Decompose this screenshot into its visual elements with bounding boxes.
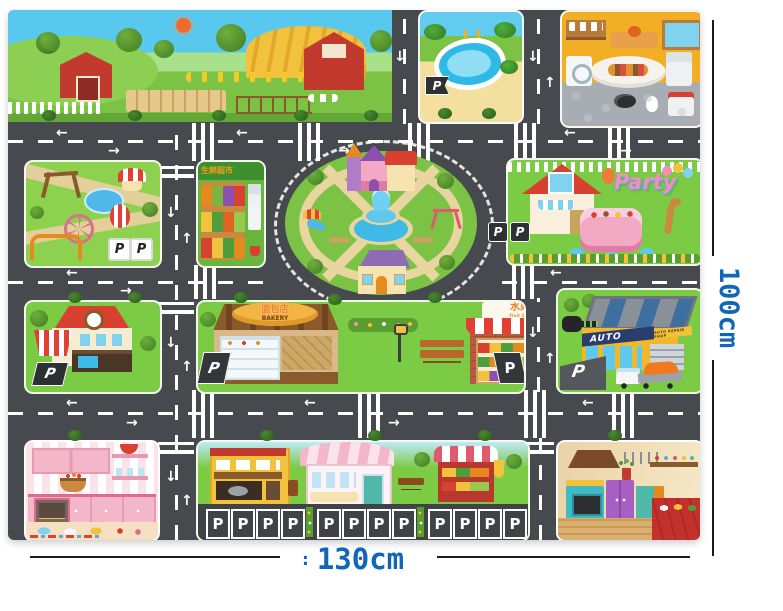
floor-cobbles [562, 84, 700, 126]
road-arrow-icon: ↑ [181, 360, 193, 374]
hot-air-balloon [110, 204, 130, 228]
auto-sign-text: AUTO [590, 331, 622, 344]
tree [506, 454, 522, 469]
play-mat: ← → ← → ← → ← → ← → ← → ← → ← ↓ ↑ ↓ ↑ ↓ … [8, 10, 700, 540]
palm-tree [424, 24, 446, 40]
scene-party: Party [506, 158, 700, 266]
crosswalk [524, 390, 548, 438]
scene-pink-kitchen [24, 440, 160, 540]
car-key-icon [562, 316, 582, 332]
road-arrow-icon: → [620, 144, 632, 158]
island-tree [437, 173, 454, 189]
road-centerline [537, 298, 540, 392]
shelf-cups [116, 468, 144, 476]
road-arrow-icon: ↑ [181, 494, 193, 508]
product-photo: ← → ← → ← → ← → ← → ← → ← → ← ↓ ↑ ↓ ↑ ↓ … [0, 0, 783, 611]
park-tree [30, 206, 44, 219]
crosswalk [512, 265, 534, 299]
apple-tree [216, 24, 246, 52]
tree [30, 310, 48, 327]
apple-tree [36, 32, 60, 54]
picket-fence [8, 102, 104, 114]
castle-keep-roof [360, 145, 388, 161]
produce-sign-cn: 生鲜超市 [201, 167, 233, 175]
roadside-bush [234, 292, 248, 303]
sun-icon [176, 18, 191, 33]
flower-strip [510, 254, 700, 263]
oven-window [572, 494, 602, 516]
wall-shelf [112, 454, 148, 458]
lamp-head [394, 324, 408, 335]
giraffe-head [670, 198, 681, 206]
plant-leaves [616, 458, 636, 470]
boutique-door [362, 474, 384, 508]
parking-sign: P [31, 362, 69, 386]
noodle-shop-door [266, 481, 280, 500]
bakery-sign: 面包店 BAKERY [232, 302, 318, 326]
tree [414, 452, 430, 467]
roadside-bush [368, 430, 382, 441]
car-key-shaft [580, 321, 598, 327]
park-tree [142, 202, 158, 217]
roadside-bush [128, 110, 142, 121]
park-gate [30, 234, 82, 260]
height-dimension-label: 100cm [713, 267, 744, 348]
scene-farm [8, 10, 392, 122]
road-arrow-icon: ↓ [165, 336, 177, 350]
bench [398, 478, 424, 485]
parking-space: P [478, 509, 502, 539]
roadside-bush [68, 292, 82, 303]
cooler [248, 184, 261, 230]
roadside-bush [364, 110, 378, 121]
castle [345, 143, 419, 193]
road-arrow-icon: → [388, 416, 400, 430]
garden-plot [126, 90, 226, 112]
road-arrow-icon: ↓ [527, 326, 539, 340]
boutique-dome [300, 442, 394, 466]
road-arrow-icon: ↓ [527, 50, 539, 64]
bakery-wall-paper [282, 336, 332, 370]
parking-space: P [108, 238, 131, 261]
parking-space: P [281, 509, 305, 539]
cake-topping [588, 210, 634, 220]
shelf-dishes [652, 454, 696, 462]
island-bench [413, 237, 433, 243]
oven [34, 498, 70, 524]
auto-roof [582, 296, 697, 330]
parking-sign: P [488, 222, 508, 242]
roadside-bush [260, 430, 274, 441]
parking-sign-label: P [494, 225, 503, 239]
island-tree [439, 255, 455, 270]
tree [140, 336, 156, 351]
roadside-bush [328, 294, 342, 305]
road-arrow-icon: ← [66, 396, 78, 410]
noodle-shop [210, 448, 290, 506]
restaurant-windows [80, 334, 128, 346]
party-house-window [548, 172, 574, 194]
shelf-jars [569, 22, 603, 31]
apple-tree [370, 30, 392, 52]
parking-space: P [428, 509, 452, 539]
roadside-bush [482, 108, 496, 119]
scene-bakery-supermarket: 面包店 BAKERY 水果超市 Fruit Supermarket [196, 300, 526, 394]
fountain-tier-water [366, 209, 396, 223]
porch-window [78, 356, 98, 368]
road-arrow-icon: ← [564, 126, 576, 140]
boutique-goods [310, 492, 358, 502]
restaurant-awning [34, 330, 72, 356]
parking-sign-label: P [503, 359, 518, 377]
parking-space: P [453, 509, 477, 539]
upper-cabinets [32, 448, 110, 474]
road-arrow-icon: → [108, 144, 120, 158]
parking-space-label: P [349, 515, 360, 533]
chickens [308, 94, 338, 102]
range-hood [568, 450, 620, 468]
roadside-bush [438, 108, 452, 119]
road-arrow-icon: ↑ [544, 76, 556, 90]
island-bench [329, 237, 349, 243]
crosswalk [158, 166, 194, 178]
castle-hall [387, 163, 415, 191]
noodle-shop-roofband [210, 448, 286, 456]
hanging-bananas [494, 460, 504, 478]
tree [564, 298, 579, 312]
roadside-bush [212, 110, 226, 121]
sunflowers [186, 72, 306, 82]
roadside-bush [428, 292, 442, 303]
table-food [608, 64, 648, 76]
table-dishes [656, 502, 700, 514]
roadside-bush [608, 430, 622, 441]
parking-space: P [317, 509, 341, 539]
crosswalk [298, 123, 322, 161]
supermarket-awning [466, 318, 526, 334]
bench [420, 350, 464, 358]
bakery-sign-cn: 面包店 [261, 306, 288, 315]
crosswalk [158, 442, 194, 454]
parking-space: P [503, 509, 527, 539]
castle-door [369, 179, 379, 191]
road-arrow-icon: → [126, 416, 138, 430]
width-dimension-line-left [30, 556, 280, 558]
road-arrow-icon: ↓ [165, 206, 177, 220]
palm-tree [494, 22, 516, 38]
parking-space-label: P [137, 242, 147, 257]
crosswalk [514, 123, 538, 161]
apple-tree [116, 28, 142, 52]
crosswalk [192, 390, 218, 438]
auto-sub-text: AUTO REPAIR SHOP [654, 327, 692, 339]
noodle-shop-signband [214, 472, 282, 479]
pool-ladder [464, 30, 480, 38]
bench [288, 480, 298, 496]
island-tree [307, 259, 323, 274]
road-centerline [537, 10, 540, 124]
parking-space-label: P [485, 515, 496, 533]
parking-sign-label: P [207, 359, 222, 377]
balloon-cluster [660, 162, 694, 182]
cottage-door [376, 276, 387, 294]
boutique-windows [312, 472, 356, 488]
cottage-window [362, 274, 373, 285]
road-arrow-icon: ← [66, 266, 78, 280]
parking-space-label: P [435, 515, 446, 533]
cooking-pot [628, 26, 641, 37]
fountain-jet [372, 191, 390, 211]
scene-dining-kitchen [556, 440, 700, 540]
roadside-bush [478, 430, 492, 441]
produce-sign: 生鲜超市 [198, 162, 264, 180]
parking-space-label: P [399, 515, 410, 533]
scene-shops-row: P P P P P P P P P P P P [196, 440, 530, 540]
road-arrow-icon: ↓ [394, 50, 406, 64]
washer-door [572, 64, 592, 84]
scene-restaurant: P [24, 300, 162, 394]
road-centerline [8, 281, 266, 284]
apple-tree [154, 40, 174, 58]
parking-space-label: P [288, 515, 299, 533]
parking-space: P [342, 509, 366, 539]
wall-shelf [112, 476, 148, 480]
truck-wheels [618, 382, 682, 390]
parking-space: P [392, 509, 416, 539]
parking-space: P [256, 509, 280, 539]
island-cottage [352, 250, 410, 296]
parking-space: P [231, 509, 255, 539]
crosswalk [158, 302, 194, 314]
boutique-body [306, 464, 392, 508]
road-arrow-icon: ↑ [544, 352, 556, 366]
fruit-cart-body [438, 462, 494, 502]
parking-strip: P P P P P P P P P P P P [198, 504, 528, 540]
produce-shelves [201, 182, 245, 260]
scene-dining-room [560, 10, 700, 128]
flower-divider [306, 507, 313, 537]
road-arrow-icon: ← [56, 126, 68, 140]
scene-pool: P [418, 10, 524, 124]
road-arrow-icon: ↓ [165, 470, 177, 484]
roadside-bush [68, 430, 82, 441]
cabinet-purple [606, 480, 634, 520]
flower-divider [417, 507, 424, 537]
parking-space-label: P [115, 242, 125, 257]
bakery-sign-en: BAKERY [262, 315, 289, 322]
parking-space: P [367, 509, 391, 539]
picture-frame [662, 20, 700, 50]
parking-sign-label: P [43, 366, 57, 382]
carousel [118, 168, 146, 182]
width-dimension-line-right [437, 556, 690, 558]
road-arrow-icon: ← [304, 396, 316, 410]
fruit-basket [60, 478, 86, 492]
mini-carousel [303, 209, 321, 219]
bucket [250, 246, 260, 256]
parking-space: P [130, 238, 153, 261]
crosswalk [192, 123, 218, 161]
parking-sign-label: P [433, 79, 442, 93]
parking-space-label: P [460, 515, 471, 533]
tree [200, 312, 216, 327]
parking-space-label: P [263, 515, 274, 533]
roadside-bush [42, 110, 56, 121]
carousel-base [122, 181, 142, 191]
roadside-bush [294, 110, 308, 121]
supermarket-sign-cn: 水果超市 [510, 303, 526, 313]
palm-tree [500, 60, 518, 74]
parking-sign-label: P [516, 225, 525, 239]
road-centerline [403, 10, 406, 124]
roadside-bush [128, 292, 142, 303]
towed-car [644, 361, 679, 375]
road-arrow-icon: ↑ [181, 232, 193, 246]
barn-loft [322, 44, 346, 58]
castle-hall-roof [385, 151, 417, 165]
scene-auto-shop: AUTO AUTO REPAIR SHOP P [556, 288, 700, 394]
noodle-shop-display [216, 481, 262, 500]
parking-sign: P [493, 352, 526, 384]
parking-space-label: P [324, 515, 335, 533]
giraffe-toy [664, 204, 675, 235]
parking-sign: P [425, 76, 449, 95]
parking-space: P [206, 509, 230, 539]
parking-space-label: P [374, 515, 385, 533]
fruit-cart-awning [434, 446, 498, 462]
shelf-bowl [120, 444, 138, 454]
road-arrow-icon: ← [550, 266, 562, 280]
supermarket-sign: 水果超市 Fruit Supermarket [482, 302, 526, 319]
restaurant-round-window [84, 310, 104, 330]
road-arrow-icon: ← [582, 396, 594, 410]
cottage-window [394, 274, 405, 285]
scene-park: P P [24, 160, 162, 268]
castle-tower [347, 155, 361, 191]
width-dimension-label: 130cm [317, 542, 404, 576]
parking-space-label: P [238, 515, 249, 533]
basket-fruit [64, 473, 82, 480]
parking-space-label: P [510, 515, 521, 533]
brand-text-strip [30, 535, 100, 538]
island-tree [307, 169, 324, 185]
refrigerator [666, 52, 692, 86]
road-arrow-icon: ← [236, 126, 248, 140]
wood-floor [558, 518, 658, 540]
bench-back [420, 340, 464, 347]
barn-door [76, 76, 100, 102]
height-dimension-line-bottom [712, 360, 714, 556]
road-centerline [8, 412, 700, 415]
parking-space-label: P [213, 515, 224, 533]
crosswalk [194, 265, 218, 299]
parking-sign: P [510, 222, 530, 242]
dish-shelf [650, 462, 698, 467]
party-house-awning [538, 200, 574, 210]
scene-produce-stand: 生鲜超市 [196, 160, 266, 268]
height-dimension-line-top [712, 20, 714, 256]
noodle-shop-windows [216, 460, 280, 470]
width-dimension-colon: : [300, 549, 311, 570]
width-dimension-label-group: : 130cm [300, 542, 404, 576]
